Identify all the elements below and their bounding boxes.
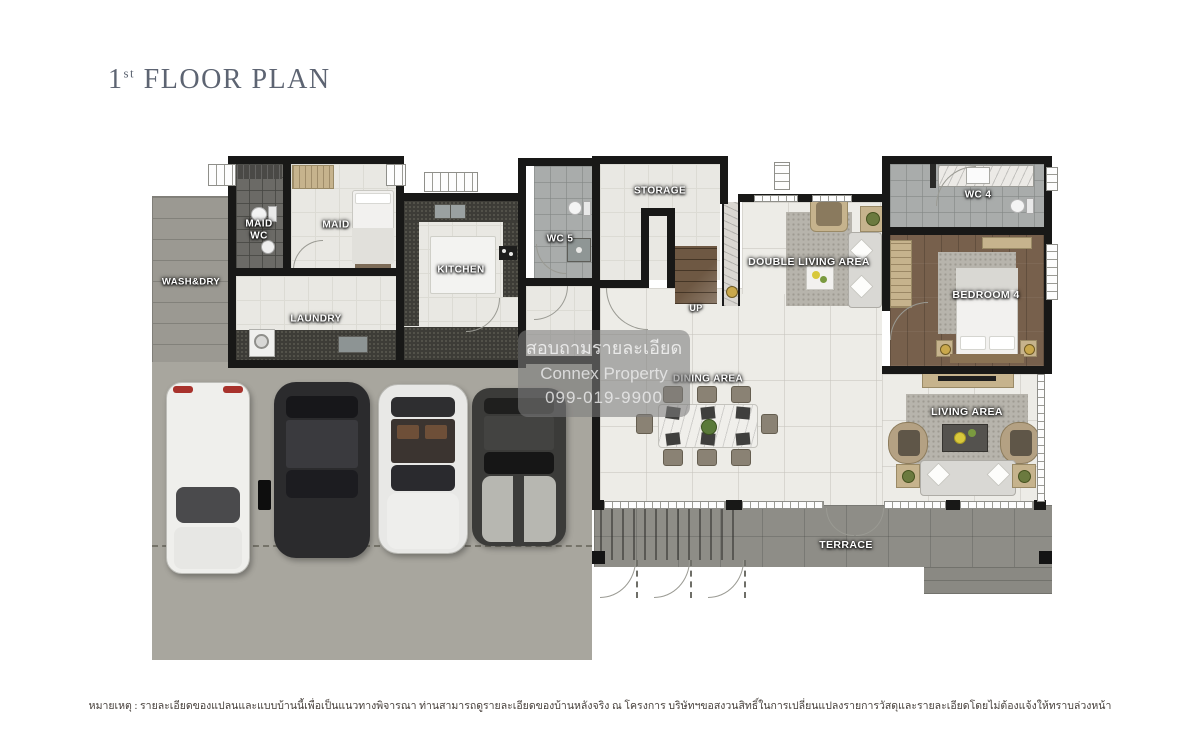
window: [604, 501, 726, 509]
kitchen-counter-bottom: [404, 327, 518, 360]
driveway-pillar: [258, 480, 271, 510]
title-ordinal: st: [124, 66, 136, 81]
window: [960, 501, 1034, 509]
bedroom4-wardrobe: [890, 240, 912, 308]
car-roof: [286, 420, 358, 468]
window-tab: [208, 164, 236, 186]
gate-arc-3: [708, 560, 744, 598]
wall: [228, 156, 404, 164]
dining-chair-top-3: [731, 386, 751, 403]
wall: [526, 158, 600, 166]
dining-chair-bottom-2: [697, 449, 717, 466]
wall: [882, 366, 1044, 374]
car-taillight: [223, 386, 243, 393]
dining-chair-bottom-3: [731, 449, 751, 466]
living-plant-right: [1018, 470, 1031, 483]
living-green-fruit: [968, 429, 976, 437]
wc4-window-tab: [1046, 167, 1058, 191]
kitchen-sink: [434, 204, 466, 219]
terrace-corner-post-left: [592, 551, 605, 564]
living-label: LIVING AREA: [931, 406, 1003, 418]
wc4-partition: [930, 164, 936, 188]
dining-chair-left: [636, 414, 653, 434]
dining-placemat-6: [736, 432, 751, 445]
stair-wall-light: [726, 286, 738, 298]
wall: [882, 227, 1044, 235]
terrace-deck-slats: [600, 507, 738, 560]
wc4-toilet-tank: [1026, 198, 1034, 214]
car-rear-glass: [391, 397, 455, 417]
wall: [720, 156, 728, 204]
stove-burner-2: [509, 252, 513, 256]
maid-wardrobe: [292, 165, 334, 189]
kitchen-label: KITCHEN: [437, 264, 484, 276]
window: [884, 501, 946, 509]
bedroom4-pillow-2: [989, 336, 1015, 350]
wash-dry-label: WASH&DRY: [162, 278, 220, 289]
bedroom4-lamp-left: [940, 344, 951, 355]
wc5-toilet-bowl: [568, 201, 582, 215]
watermark-line-1: สอบถามรายละเอียด: [518, 335, 690, 361]
maid-wc-shelf: [237, 165, 282, 179]
wc5-label: WC 5: [547, 233, 574, 245]
car-black-sedan: [274, 382, 370, 558]
terrace-extension: [924, 567, 1052, 594]
washing-machine-door: [254, 334, 269, 349]
gate-leaf-1: [636, 560, 638, 598]
wall: [396, 193, 526, 201]
bedroom4-dresser: [982, 237, 1032, 249]
dining-chair-bottom-1: [663, 449, 683, 466]
living-armchair-right-cushion: [1010, 430, 1032, 456]
wall: [592, 158, 600, 288]
tv: [938, 376, 996, 381]
bedroom4-pillow-1: [960, 336, 986, 350]
double-living-lemon-plate: [812, 271, 820, 279]
wall: [228, 360, 526, 368]
wall: [228, 268, 402, 276]
wall: [396, 156, 404, 368]
window-post: [946, 500, 960, 510]
laundry-sink: [338, 336, 368, 353]
watermark-line-2: Connex Property: [518, 361, 690, 386]
maid-bed-blanket: [352, 228, 394, 264]
wall: [526, 278, 600, 286]
maid-bed-pillow: [355, 193, 391, 204]
stove-burner-1: [502, 249, 506, 253]
car-hood: [387, 493, 459, 549]
bedroom4-window-tab: [1046, 244, 1058, 300]
wall: [641, 208, 649, 288]
watermark-line-3: 099-019-9900: [518, 386, 690, 410]
title-text: FLOOR PLAN: [135, 64, 330, 95]
terrace-label: TERRACE: [819, 539, 873, 551]
car-rear-glass: [286, 396, 358, 418]
wall: [592, 280, 648, 288]
car-roof: [484, 416, 554, 450]
double-living-window-1: [754, 195, 798, 202]
maid-label: MAID: [322, 219, 349, 231]
dining-centerpiece-plant: [701, 419, 717, 435]
dining-placemat-4: [665, 432, 680, 446]
window-tab: [386, 164, 406, 186]
living-plant-left: [902, 470, 915, 483]
double-living-armchair-cushion: [816, 202, 842, 226]
double-living-window-2: [812, 195, 852, 202]
car-hood: [174, 527, 242, 569]
bedroom4-bed-blanket: [956, 268, 1018, 290]
maid-wc-label: MAID WC: [240, 219, 278, 242]
wc5-shower-drain: [576, 247, 582, 253]
car-windshield: [176, 487, 240, 523]
window-post: [592, 500, 604, 510]
maid-wc-sink: [261, 240, 275, 254]
up-label: UP: [689, 303, 702, 313]
storage-label: STORAGE: [634, 185, 686, 197]
wall: [667, 208, 675, 288]
kitchen-counter-left: [404, 222, 419, 326]
floor-plan-page: 1st FLOOR PLAN: [0, 0, 1200, 750]
living-glass-wall: [1037, 374, 1045, 502]
living-lemon-plate: [954, 432, 966, 444]
car-white-suv: [166, 382, 250, 574]
car-taillight: [173, 386, 193, 393]
wc5-toilet-tank: [583, 201, 591, 216]
wall: [882, 156, 1052, 164]
gate-leaf-3: [744, 560, 746, 598]
window-tab: [774, 162, 790, 190]
watermark: สอบถามรายละเอียด Connex Property 099-019…: [518, 330, 690, 417]
window-post: [726, 500, 742, 510]
wall: [882, 156, 890, 236]
window: [742, 501, 824, 509]
terrace-corner-post-right: [1039, 551, 1052, 564]
dining-placemat-3: [736, 406, 751, 419]
wall: [228, 156, 236, 368]
kitchen-stove: [499, 246, 517, 260]
wc4-toilet-bowl: [1010, 199, 1025, 213]
bedroom4-label: BEDROOM 4: [952, 289, 1019, 301]
bedroom4-headboard: [950, 354, 1024, 363]
gate-leaf-2: [690, 560, 692, 598]
car-seat: [397, 425, 419, 439]
living-armchair-left-cushion: [898, 430, 920, 456]
car-white-coupe: [378, 384, 468, 554]
gate-arc-1: [600, 560, 636, 598]
car-windshield: [391, 465, 455, 491]
dining-chair-top-2: [697, 386, 717, 403]
car-seat: [425, 425, 447, 439]
car-hood-stripe: [513, 476, 524, 542]
staircase: [675, 246, 717, 304]
footer-note: หมายเหตุ : รายละเอียดของแปลนและแบบบ้านนี…: [0, 697, 1200, 714]
wc4-label: WC 4: [965, 189, 992, 201]
dining-chair-right: [761, 414, 778, 434]
page-title: 1st FLOOR PLAN: [108, 64, 331, 96]
double-living-plant: [866, 212, 880, 226]
double-living-green-fruit: [820, 276, 827, 283]
bedroom4-lamp-right: [1024, 344, 1035, 355]
car-windshield: [286, 470, 358, 498]
wall: [882, 235, 890, 311]
title-number: 1: [108, 64, 124, 95]
wall: [283, 156, 291, 274]
double-living-label: DOUBLE LIVING AREA: [748, 256, 870, 268]
gate-arc-2: [654, 560, 690, 598]
laundry-label: LAUNDRY: [290, 313, 341, 325]
kitchen-window: [424, 172, 478, 192]
dining-placemat-2: [700, 406, 715, 419]
wall: [592, 156, 728, 164]
car-windshield: [484, 452, 554, 474]
